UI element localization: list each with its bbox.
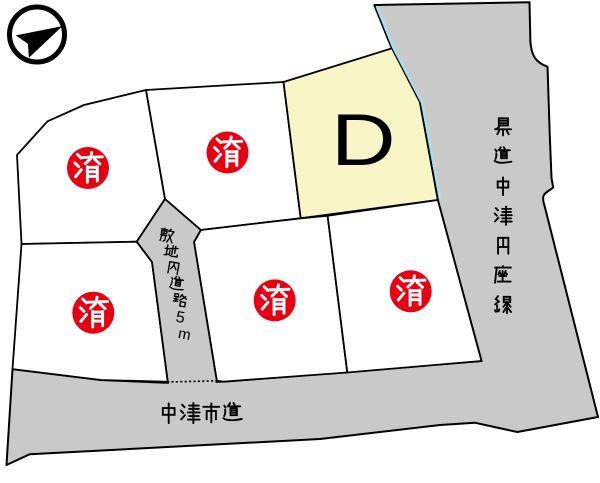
- svg-text:D: D: [331, 100, 396, 181]
